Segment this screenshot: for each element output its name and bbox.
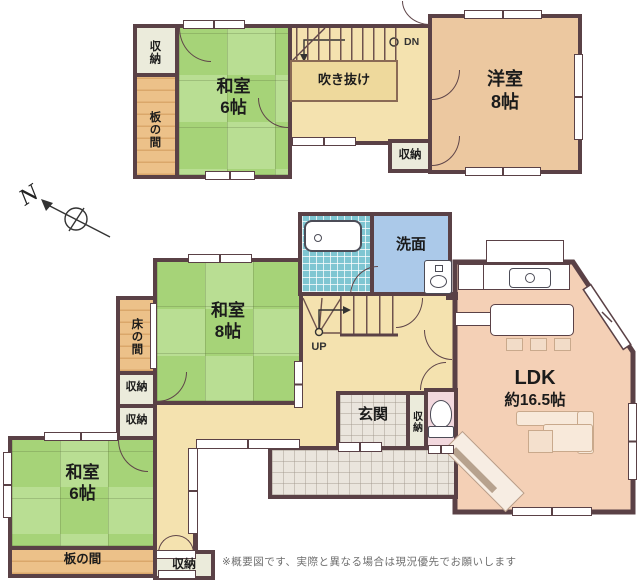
room-size: 8帖 bbox=[215, 322, 241, 341]
label-washitsu6-1f: 和室 6帖 bbox=[8, 462, 157, 505]
room-name: 和室 bbox=[211, 301, 245, 320]
label-closet-1f-a: 収納 bbox=[116, 381, 157, 395]
window bbox=[465, 167, 541, 176]
kitchen-bay-window bbox=[486, 240, 564, 263]
room-size: 6帖 bbox=[220, 98, 246, 117]
window bbox=[294, 361, 303, 408]
room-size: 6帖 bbox=[69, 484, 95, 503]
window bbox=[464, 10, 542, 19]
label-ldk: LDK 約16.5帖 bbox=[460, 366, 610, 411]
label-washitsu8-1f: 和室 8帖 bbox=[153, 300, 303, 343]
label-itanoma-1f: 板の間 bbox=[8, 552, 157, 568]
label-tokonoma: 床の間 bbox=[129, 304, 143, 370]
entrance-door bbox=[338, 442, 382, 452]
side-table bbox=[528, 430, 553, 453]
label-senmen: 洗面 bbox=[370, 236, 452, 255]
window bbox=[188, 448, 198, 534]
label-washitsu6-2f: 和室 6帖 bbox=[175, 76, 292, 119]
label-itanoma-2f: 板の間 bbox=[147, 85, 161, 175]
label-shoe-closet: 収納 bbox=[409, 400, 422, 444]
window bbox=[188, 254, 252, 263]
label-stairs-up: UP bbox=[302, 341, 336, 355]
footer-note: ※概要図です、実際と異なる場合は現況優先でお願いします bbox=[222, 554, 516, 569]
dn-text: DN bbox=[404, 36, 419, 48]
label-stairs-dn: DN bbox=[404, 36, 419, 48]
window bbox=[196, 439, 300, 449]
label-void: 吹き抜け bbox=[288, 72, 400, 88]
room-size: 8帖 bbox=[491, 92, 519, 112]
room-size: 約16.5帖 bbox=[504, 392, 565, 409]
label-genkan: 玄関 bbox=[336, 406, 410, 425]
kitchen-counter bbox=[458, 264, 570, 290]
label-youshitsu8: 洋室 8帖 bbox=[428, 68, 582, 113]
room-name: LDK bbox=[514, 367, 555, 389]
chair bbox=[506, 338, 523, 351]
window bbox=[183, 20, 245, 29]
toilet-tank-icon bbox=[428, 426, 454, 438]
window bbox=[292, 137, 356, 146]
stairs-up-arrow-icon bbox=[316, 306, 352, 336]
label-closet-2f-top: 収納 bbox=[147, 29, 161, 75]
dining-table bbox=[490, 304, 574, 336]
window bbox=[428, 445, 454, 454]
chair bbox=[554, 338, 571, 351]
room-name: 和室 bbox=[66, 463, 100, 482]
bathtub-icon bbox=[304, 220, 362, 252]
window bbox=[205, 171, 255, 180]
window bbox=[628, 403, 637, 480]
window bbox=[512, 507, 592, 516]
label-closet-1f-c: 収納 bbox=[153, 557, 215, 572]
room-name: 洋室 bbox=[487, 69, 523, 89]
wall-segment bbox=[193, 533, 198, 551]
pass-counter bbox=[455, 312, 493, 326]
toilet-icon bbox=[430, 400, 452, 428]
room-name: 和室 bbox=[217, 77, 251, 96]
kitchen-sink-icon bbox=[509, 268, 551, 288]
chair bbox=[530, 338, 547, 351]
washbasin-icon bbox=[424, 260, 452, 294]
floor-plan: 収納 板の間 和室 6帖 DN 吹き抜け 収納 洋室 8帖 N 和室 8帖 床の… bbox=[0, 0, 640, 580]
window bbox=[44, 432, 118, 441]
label-closet-1f-b: 収納 bbox=[116, 414, 157, 428]
compass-icon bbox=[41, 199, 110, 237]
label-closet-2f-mid: 収納 bbox=[388, 148, 432, 162]
